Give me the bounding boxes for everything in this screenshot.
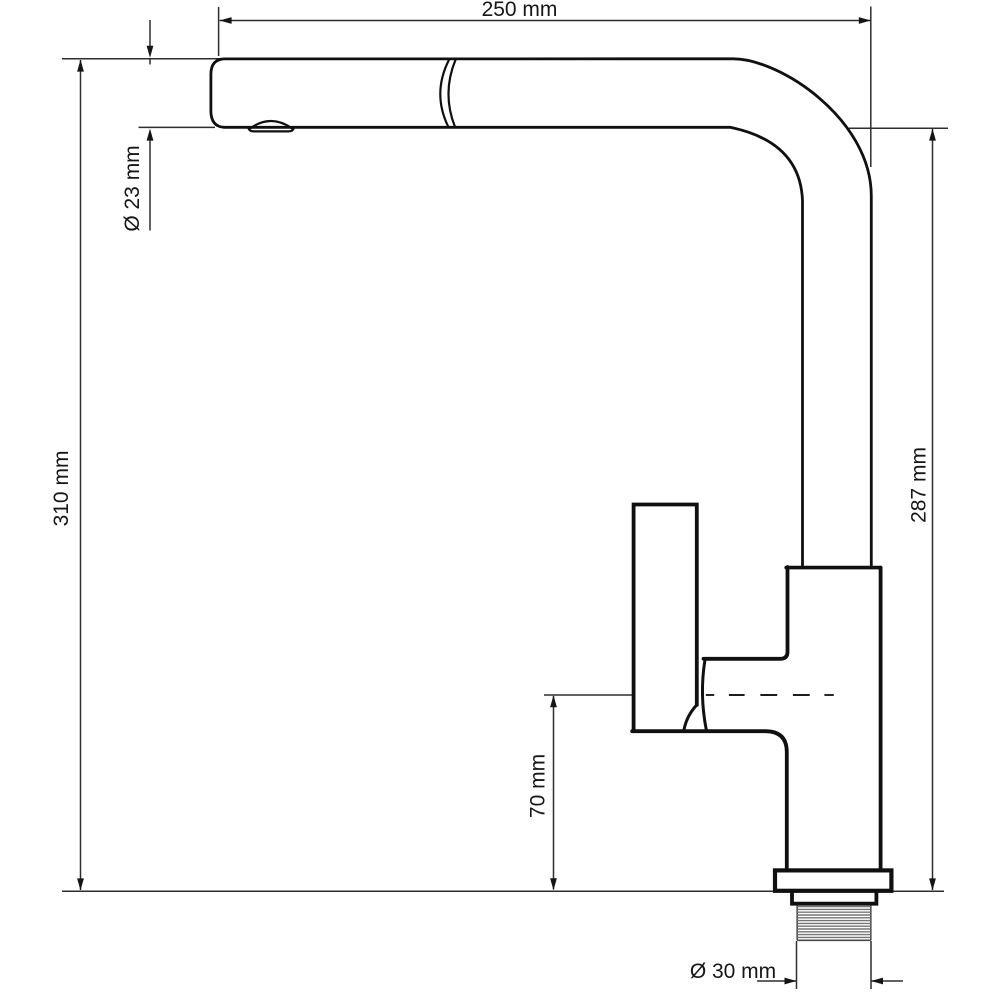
svg-text:287 mm: 287 mm — [908, 447, 931, 523]
svg-text:70 mm: 70 mm — [527, 754, 550, 818]
svg-text:250 mm: 250 mm — [482, 0, 558, 21]
svg-text:Ø 23 mm: Ø 23 mm — [121, 145, 144, 231]
svg-text:310 mm: 310 mm — [50, 451, 73, 527]
svg-text:Ø 30 mm: Ø 30 mm — [690, 960, 776, 983]
